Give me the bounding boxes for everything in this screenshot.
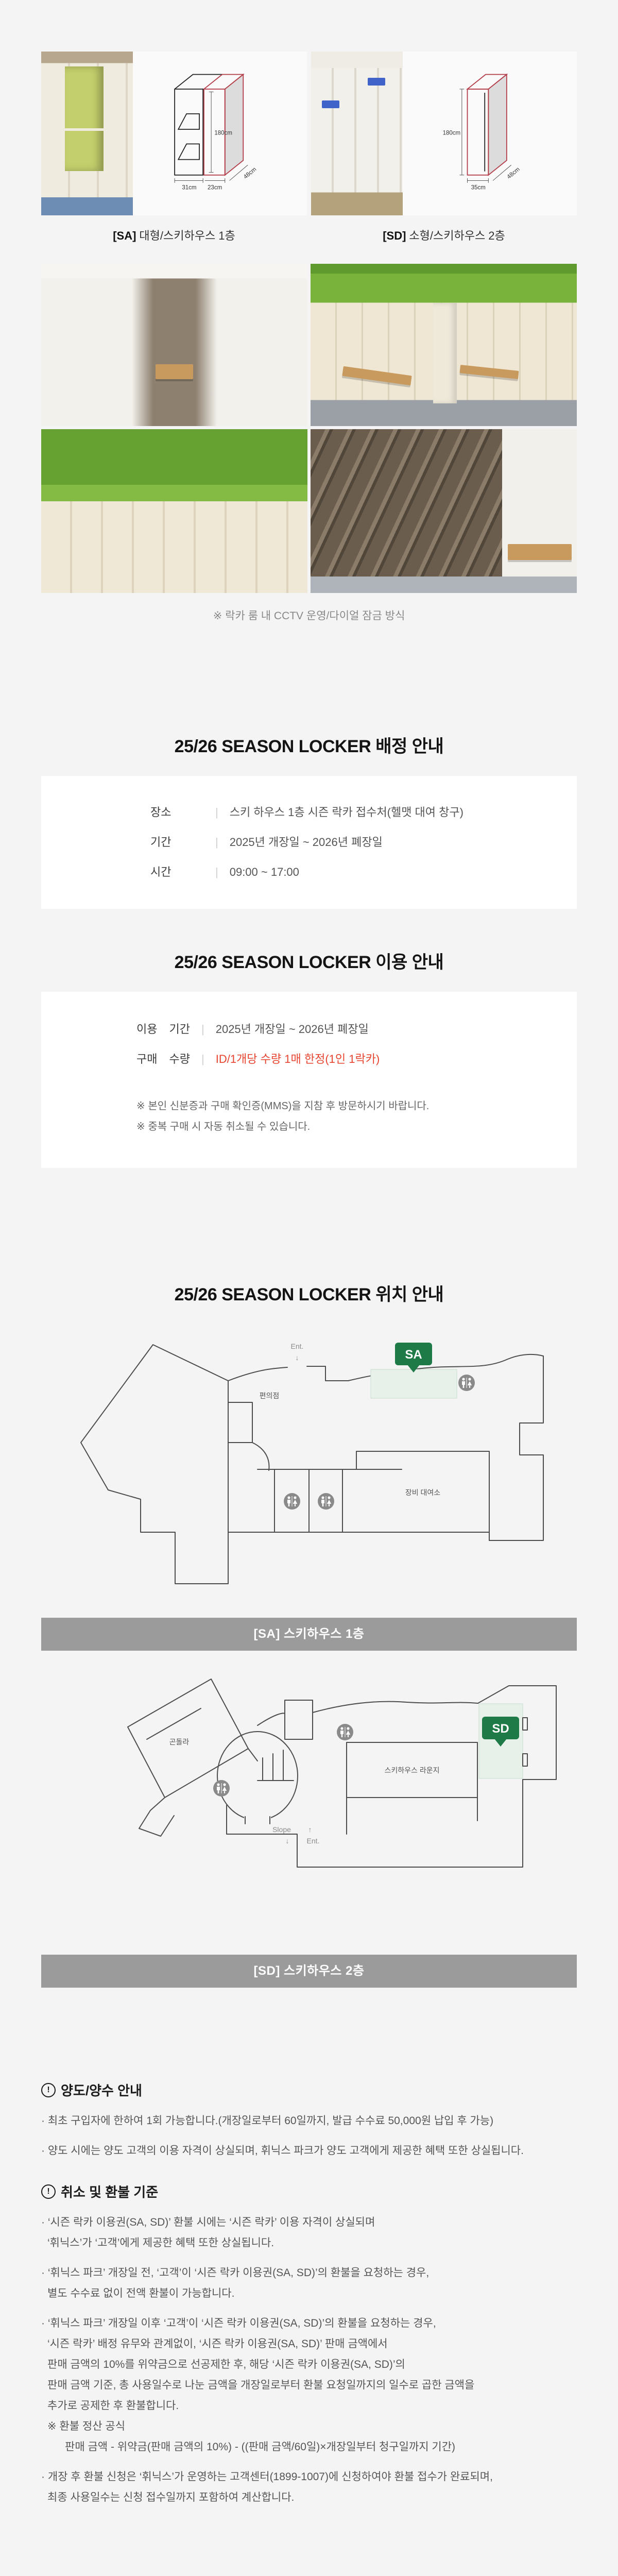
transfer-notice-body: · 최초 구입자에 한하여 1회 가능합니다.(개장일로부터 60일까지, 발급…: [41, 2111, 577, 2161]
assignment-row-place: 장소 | 스키 하우스 1층 시즌 락카 접수처(헬맷 대여 창구): [150, 805, 556, 820]
floor2-banner: [SD] 스키하우스 2층: [41, 1955, 577, 1988]
floor2-slope-label: Slope: [272, 1825, 291, 1834]
floor-plan-sa: SA Ent. ↓ 편의점 장비 대여소: [41, 1320, 577, 1618]
locker-room-photo-grid: [41, 264, 577, 593]
locker-sd-photo: [311, 52, 403, 215]
refund-notice-body: · ‘시즌 락카 이용권(SA, SD)’ 환불 시에는 ‘시즌 락카’ 이용 …: [41, 2212, 577, 2508]
locker-sd-diagram-panel: 180cm 35cm 48cm: [403, 52, 577, 215]
dim-depth-sa: 48cm: [243, 166, 257, 180]
locker-number-sign: [368, 78, 385, 86]
dim-width-sd: 35cm: [471, 184, 486, 191]
floor2-gondola-label: 곤돌라: [169, 1738, 190, 1746]
caption-sa-text: 대형/스키하우스 1층: [139, 229, 235, 242]
transfer-notice-title: 양도/양수 안내: [61, 2080, 142, 2099]
notice-line: · 개장 후 환불 신청은 ‘휘닉스’가 운영하는 고객센터(1899-1007…: [41, 2467, 577, 2487]
row-separator: |: [215, 865, 218, 880]
notice-line: 추가로 공제한 후 환불합니다.: [41, 2396, 577, 2416]
usage-notes: ※ 본인 신분증과 구매 확인증(MMS)을 지참 후 방문하시기 바랍니다. …: [136, 1096, 556, 1137]
usage-note: ※ 본인 신분증과 구매 확인증(MMS)을 지참 후 방문하시기 바랍니다.: [136, 1096, 556, 1116]
usage-title: 25/26 SEASON LOCKER 이용 안내: [41, 948, 577, 973]
dim-width-right-sa: 23cm: [208, 184, 222, 191]
restroom-icon: [318, 1493, 334, 1510]
restroom-icon: [337, 1724, 353, 1740]
row-value: 스키 하우스 1층 시즌 락카 접수처(헬맷 대여 창구): [230, 805, 463, 820]
location-title: 25/26 SEASON LOCKER 위치 안내: [41, 1280, 577, 1306]
usage-note: ※ 중복 구매 시 자동 취소될 수 있습니다.: [136, 1116, 556, 1137]
floor1-store-label: 편의점: [260, 1392, 280, 1400]
locker-sa-panel: 180cm 31cm 23cm 48cm: [41, 52, 307, 215]
locker-sa-diagram-panel: 180cm 31cm 23cm 48cm: [133, 52, 307, 215]
restroom-icon: [458, 1375, 475, 1391]
usage-row-quantity: 구매 수량 | ID/1개당 수량 1매 한정(1인 1락카): [136, 1052, 556, 1067]
transfer-notice-heading: ! 양도/양수 안내: [41, 2080, 577, 2099]
dim-depth-sd: 48cm: [506, 166, 521, 180]
floor1-banner: [SA] 스키하우스 1층: [41, 1618, 577, 1651]
floor2-entrance-label: Ent.: [307, 1837, 320, 1845]
bench: [508, 544, 572, 561]
caption-sd-text: 소형/스키하우스 2층: [409, 229, 505, 242]
row-separator: |: [201, 1052, 204, 1067]
page-content: 180cm 31cm 23cm 48cm: [41, 52, 577, 2576]
notice-line: ※ 환불 정산 공식: [41, 2416, 577, 2437]
row-label: 이용 기간: [136, 1022, 190, 1037]
assignment-row-period: 기간 | 2025년 개장일 ~ 2026년 폐장일: [150, 835, 556, 850]
sa-marker-label: SA: [405, 1348, 422, 1362]
caption-sd-tag: [SD]: [383, 229, 406, 242]
sa-highlight-area: [371, 1369, 457, 1398]
locker-sd-diagram: 180cm 35cm 48cm: [413, 56, 567, 211]
refund-formula: 판매 금액 - 위약금(판매 금액의 10%) - ((판매 금액/60일)×개…: [41, 2437, 577, 2458]
locker-island: [433, 303, 457, 403]
row-separator: |: [215, 805, 218, 820]
caption-sa-tag: [SA]: [113, 229, 136, 242]
restroom-icon: [213, 1780, 230, 1797]
row-separator: |: [215, 835, 218, 850]
notice-line: · ‘휘닉스 파크’ 개장일 전, ‘고객’이 ‘시즌 락카 이용권(SA, S…: [41, 2263, 577, 2283]
notice-bullet: · 양도 시에는 양도 고객의 이용 자격이 상실되며, 휘닉스 파크가 양도 …: [41, 2141, 577, 2161]
locker-type-row: 180cm 31cm 23cm 48cm: [41, 52, 577, 215]
notice-line: ‘시즌 락카’ 배정 유무와 관계없이, ‘시즌 락카 이용권(SA, SD)’…: [41, 2334, 577, 2354]
row-value-highlight: ID/1개당 수량 1매 한정(1인 1락카): [216, 1052, 380, 1067]
photo-locker-room-closeup: [41, 429, 307, 593]
notice-line: · 최초 구입자에 한하여 1회 가능합니다.(개장일로부터 60일까지, 발급…: [41, 2111, 577, 2131]
dim-height-sa: 180cm: [214, 130, 232, 137]
floor2-entrance-arrow: ↑: [308, 1825, 312, 1834]
refund-notice-heading: ! 취소 및 환불 기준: [41, 2182, 577, 2201]
row-value: 2025년 개장일 ~ 2026년 폐장일: [230, 835, 383, 850]
floor2-slope-arrow: ↓: [286, 1837, 289, 1845]
locker-shelf: [65, 128, 104, 131]
dim-width-left-sa: 31cm: [182, 184, 196, 191]
notice-line: 판매 금액 기준, 총 사용일수로 나눈 금액을 개장일로부터 환불 요청일까지…: [41, 2375, 577, 2396]
notice-bullet: · 최초 구입자에 한하여 1회 가능합니다.(개장일로부터 60일까지, 발급…: [41, 2111, 577, 2131]
notices-section: ! 양도/양수 안내 · 최초 구입자에 한하여 1회 가능합니다.(개장일로부…: [41, 2080, 577, 2576]
restroom-icon: [284, 1493, 300, 1510]
notice-line: 최종 사용일수는 신청 접수일까지 포함하여 계산합니다.: [41, 2487, 577, 2508]
bench: [459, 365, 519, 379]
locker-sa-diagram: 180cm 31cm 23cm 48cm: [143, 56, 297, 211]
locker-open-door: [65, 66, 104, 172]
exclamation-circle-icon: !: [41, 2184, 56, 2199]
notice-line: ‘휘닉스’가 ‘고객’에게 제공한 혜택 또한 상실됩니다.: [41, 2233, 577, 2253]
refund-notice-title: 취소 및 환불 기준: [61, 2182, 158, 2201]
sd-marker-label: SD: [492, 1722, 509, 1736]
locker-sa-photo: [41, 52, 133, 215]
floor-plan-sd: SD 스키하우스 라운지 곤돌라 Slope ↑ ↓ Ent.: [41, 1651, 577, 1955]
row-label: 기간: [150, 835, 204, 850]
assignment-title: 25/26 SEASON LOCKER 배정 안내: [41, 732, 577, 757]
caption-sd: [SD]소형/스키하우스 2층: [311, 227, 577, 243]
notice-bullet: · ‘휘닉스 파크’ 개장일 이후 ‘고객’이 ‘시즌 락카 이용권(SA, S…: [41, 2313, 577, 2458]
row-value: 09:00 ~ 17:00: [230, 865, 299, 880]
assignment-row-time: 시간 | 09:00 ~ 17:00: [150, 865, 556, 880]
caption-sa: [SA]대형/스키하우스 1층: [41, 227, 307, 243]
row-separator: |: [201, 1022, 204, 1037]
usage-card: 이용 기간 | 2025년 개장일 ~ 2026년 폐장일 구매 수량 | ID…: [41, 992, 577, 1168]
floor1-rental-label: 장비 대여소: [405, 1488, 440, 1497]
row-label: 구매 수량: [136, 1052, 190, 1067]
assignment-card: 장소 | 스키 하우스 1층 시즌 락카 접수처(헬맷 대여 창구) 기간 | …: [41, 776, 577, 909]
notice-line: · 양도 시에는 양도 고객의 이용 자격이 상실되며, 휘닉스 파크가 양도 …: [41, 2141, 577, 2161]
notice-line: · ‘시즌 락카 이용권(SA, SD)’ 환불 시에는 ‘시즌 락카’ 이용 …: [41, 2212, 577, 2233]
cctv-note: ※ 락카 룸 내 CCTV 운영/다이얼 잠금 방식: [41, 607, 577, 623]
notice-bullet: · ‘시즌 락카 이용권(SA, SD)’ 환불 시에는 ‘시즌 락카’ 이용 …: [41, 2212, 577, 2253]
photo-locker-hall-green-ceiling: [311, 264, 577, 426]
notice-bullet: · ‘휘닉스 파크’ 개장일 전, ‘고객’이 ‘시즌 락카 이용권(SA, S…: [41, 2263, 577, 2304]
notice-bullet: · 개장 후 환불 신청은 ‘휘닉스’가 운영하는 고객센터(1899-1007…: [41, 2467, 577, 2508]
dim-height-sd: 180cm: [443, 130, 461, 137]
row-value: 2025년 개장일 ~ 2026년 폐장일: [216, 1022, 369, 1037]
row-label: 장소: [150, 805, 204, 820]
photo-locker-rows-bench: [311, 429, 577, 593]
bench: [342, 366, 412, 385]
floor2-lounge-label: 스키하우스 라운지: [385, 1766, 440, 1774]
locker-number-sign: [322, 100, 339, 108]
notice-line: 별도 수수료 없이 전액 환불이 가능합니다.: [41, 2283, 577, 2304]
floor1-entrance-arrow: ↓: [296, 1353, 299, 1362]
usage-row-period: 이용 기간 | 2025년 개장일 ~ 2026년 폐장일: [136, 1022, 556, 1037]
locker-sd-panel: 180cm 35cm 48cm: [311, 52, 577, 215]
row-label: 시간: [150, 865, 204, 880]
notice-line: · ‘휘닉스 파크’ 개장일 이후 ‘고객’이 ‘시즌 락카 이용권(SA, S…: [41, 2313, 577, 2334]
floor1-entrance-label: Ent.: [291, 1342, 304, 1350]
exclamation-circle-icon: !: [41, 2083, 56, 2097]
notice-line: 판매 금액의 10%를 위약금으로 선공제한 후, 해당 ‘시즌 락카 이용권(…: [41, 2354, 577, 2375]
locker-captions: [SA]대형/스키하우스 1층 [SD]소형/스키하우스 2층: [41, 227, 577, 243]
bench: [156, 364, 193, 379]
photo-locker-corridor: [41, 264, 307, 426]
